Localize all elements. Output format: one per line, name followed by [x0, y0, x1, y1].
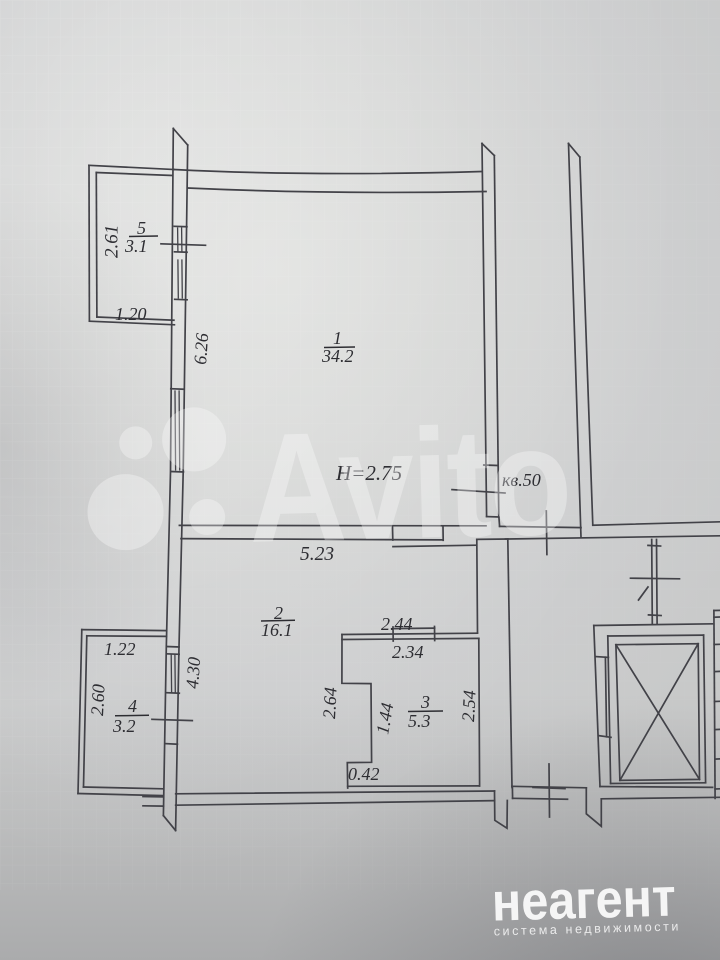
svg-text:1.20: 1.20	[115, 304, 147, 324]
svg-text:5: 5	[137, 218, 146, 238]
svg-text:16.1: 16.1	[261, 620, 293, 640]
svg-text:2.64: 2.64	[319, 687, 341, 720]
svg-text:34.2: 34.2	[321, 346, 354, 366]
svg-text:4.30: 4.30	[182, 656, 204, 689]
svg-text:2.61: 2.61	[102, 225, 123, 258]
svg-text:0.42: 0.42	[348, 764, 380, 784]
svg-text:3.2: 3.2	[112, 716, 136, 736]
svg-text:2.34: 2.34	[392, 642, 424, 662]
svg-text:2.60: 2.60	[87, 684, 109, 717]
svg-text:5.3: 5.3	[408, 711, 431, 731]
svg-text:1: 1	[333, 328, 342, 348]
svg-text:2.44: 2.44	[381, 614, 413, 634]
svg-text:6.26: 6.26	[190, 332, 212, 365]
svg-text:3: 3	[420, 692, 430, 712]
svg-text:4: 4	[128, 696, 137, 716]
svg-text:Avito: Avito	[246, 393, 571, 575]
svg-text:3.1: 3.1	[124, 236, 148, 256]
svg-text:2.54: 2.54	[458, 690, 480, 723]
svg-text:1.22: 1.22	[104, 639, 136, 659]
